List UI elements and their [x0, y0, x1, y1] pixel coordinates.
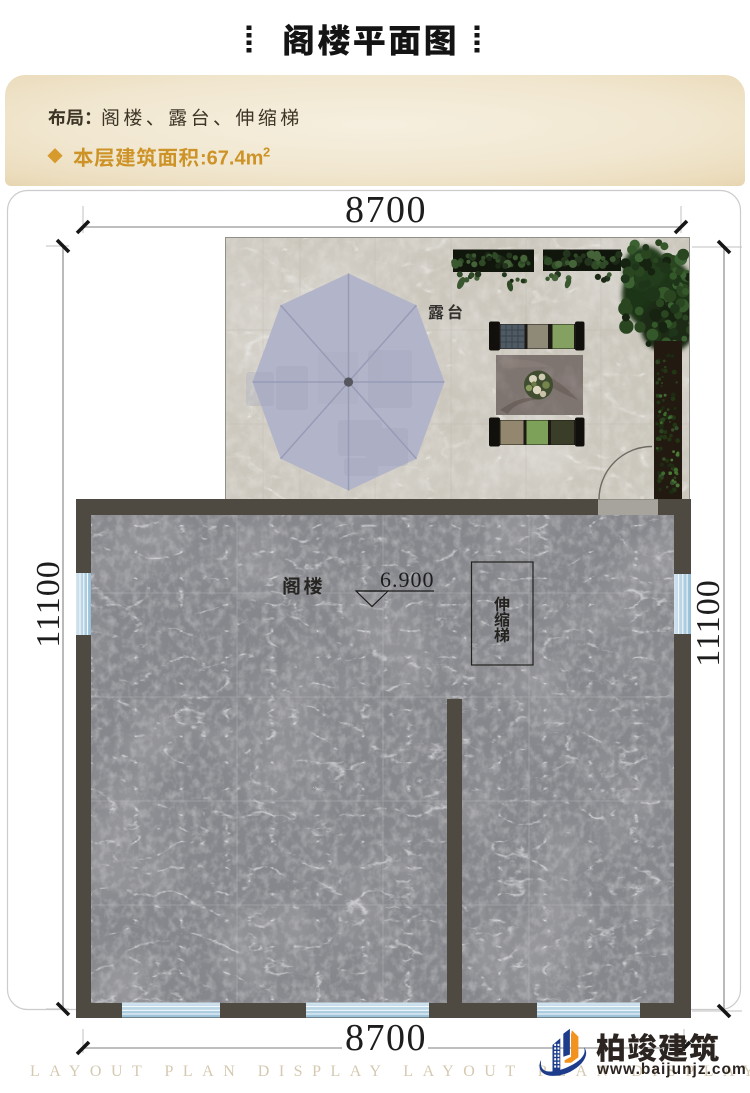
svg-text:11100: 11100 — [690, 579, 727, 666]
svg-text:www.baijunjz.com: www.baijunjz.com — [596, 1061, 747, 1078]
svg-text:6.900: 6.900 — [380, 567, 435, 592]
svg-text:8700: 8700 — [345, 1017, 427, 1059]
svg-text:11100: 11100 — [30, 560, 67, 647]
svg-text:8700: 8700 — [345, 189, 427, 231]
svg-text::67.4m: :67.4m — [200, 148, 263, 170]
svg-text:2: 2 — [263, 145, 270, 160]
